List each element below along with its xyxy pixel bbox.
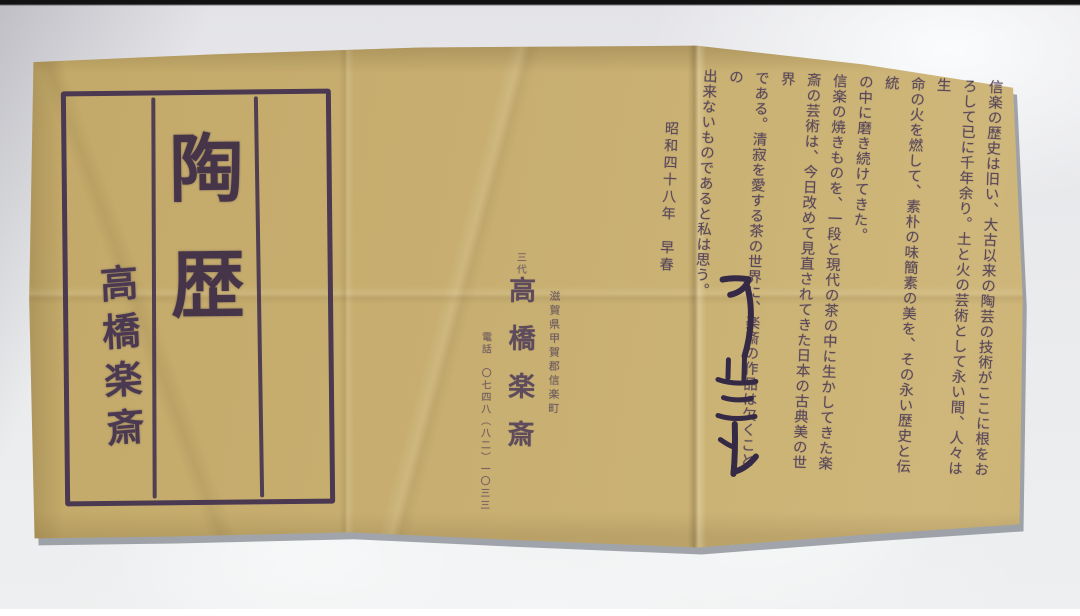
publisher-name-line: 三代高橋楽斎 (497, 252, 540, 532)
title-char-reki: 歴 (159, 248, 256, 323)
publisher-address: 滋賀県甲賀郡信楽町 (537, 252, 570, 532)
brush-signature-mark (703, 271, 770, 483)
publisher-phone: 電話 〇七四八（八二）一〇三三 (469, 251, 500, 531)
title-box: 陶 歴 高橋楽斎 (61, 89, 335, 507)
publisher-generation: 三代 (514, 252, 525, 276)
publisher-name: 高橋楽斎 (502, 276, 535, 468)
publisher-block: 滋賀県甲賀郡信楽町 三代高橋楽斎 電話 〇七四八（八二）一〇三三 (469, 251, 570, 532)
box-signature-calligraphy: 高橋楽斎 (86, 262, 154, 496)
box-column-divider (151, 97, 156, 498)
body-paragraph: 信楽の歴史は旧い、大古以来の陶芸の技術がここに根をお ろして已に千年余り。土と火… (645, 67, 1008, 478)
title-column: 陶 歴 (158, 132, 256, 323)
title-char-tou: 陶 (158, 132, 255, 207)
photo-background: 陶 歴 高橋楽斎 滋賀県甲賀郡信楽町 三代高橋楽斎 電話 〇七四八（八二）一〇三… (0, 0, 1080, 609)
